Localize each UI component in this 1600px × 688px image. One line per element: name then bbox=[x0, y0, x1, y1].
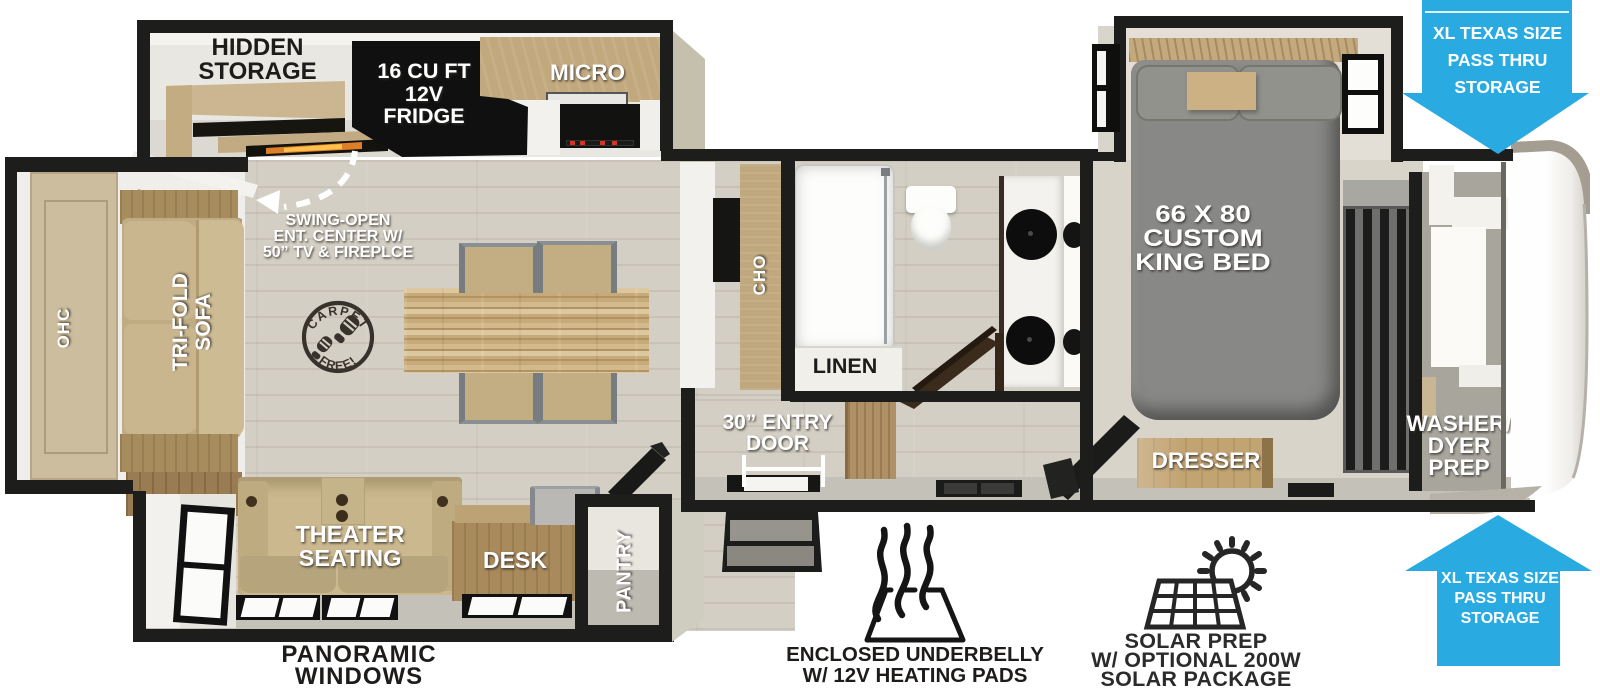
svg-text:CARPET: CARPET bbox=[304, 304, 372, 332]
svg-text:FREE!: FREE! bbox=[316, 353, 359, 373]
